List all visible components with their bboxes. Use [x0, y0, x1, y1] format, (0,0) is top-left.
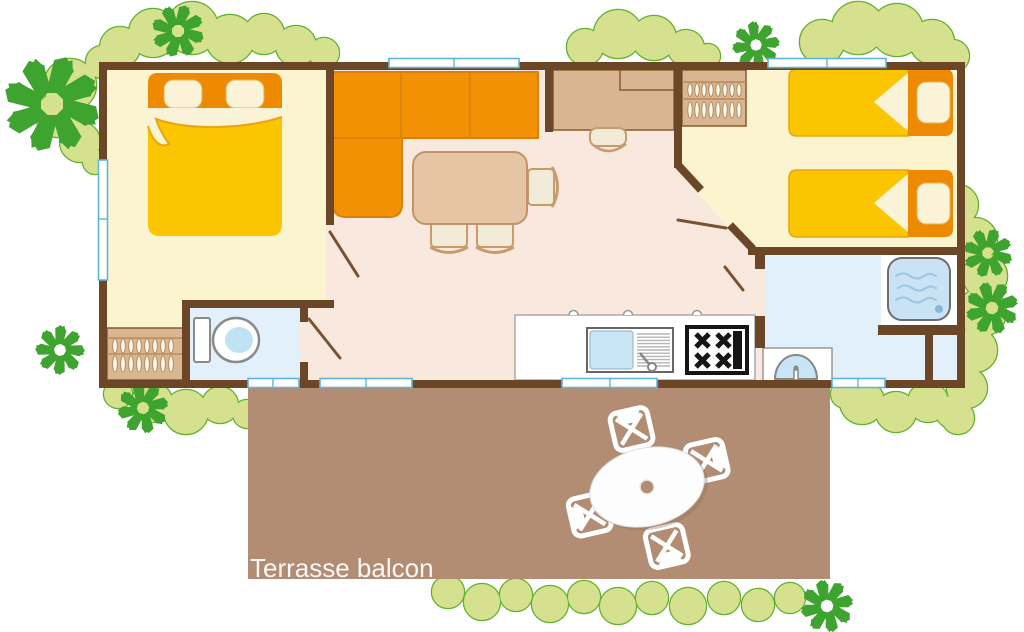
sink-basin: [590, 331, 633, 369]
wall-toilet-right-1: [300, 308, 308, 322]
wall-master-bedroom: [326, 70, 334, 225]
floorplan-illustration: Terrasse balcon: [0, 0, 1024, 632]
faucet-icon: [794, 370, 798, 380]
window: [389, 59, 519, 68]
dining-table: [413, 152, 527, 224]
wall-stub-kitchen: [545, 70, 553, 132]
washbasin: [763, 348, 832, 381]
wall-right: [957, 62, 965, 388]
window: [768, 59, 886, 68]
floorplan-svg: Terrasse balcon: [0, 0, 1024, 632]
kitchen-sink: [587, 328, 673, 372]
wall-toilet-right-2: [300, 362, 308, 380]
pillow: [164, 80, 202, 108]
stove: [687, 327, 747, 373]
wall-toilet-top: [182, 300, 334, 308]
wall-second-bedroom-bottom: [748, 247, 957, 255]
wall-bathroom-inner: [925, 335, 933, 380]
window: [248, 379, 299, 388]
single-bed-2: [789, 170, 953, 237]
wall-bathroom-1: [755, 255, 765, 269]
tree-icon: [26, 316, 95, 385]
master-wardrobe: [107, 328, 185, 380]
toilet: [194, 318, 259, 362]
drain-icon: [935, 305, 943, 313]
dining-chair: [430, 221, 468, 253]
window: [320, 379, 412, 388]
dining-chair: [528, 167, 558, 207]
window: [562, 379, 657, 388]
toilet-tank: [194, 318, 210, 362]
single-bed-1: [789, 69, 953, 136]
dining-chair: [476, 221, 514, 253]
second-bedroom-wardrobe: [682, 70, 746, 126]
window: [832, 379, 885, 388]
toilet-water: [225, 327, 253, 353]
wall-toilet-left: [182, 308, 190, 380]
pillow: [917, 183, 950, 224]
window: [99, 160, 108, 280]
terrace: Terrasse balcon: [248, 388, 830, 583]
terrace-deck: [248, 388, 830, 579]
double-bed: [148, 73, 282, 236]
wall-second-bedroom: [674, 70, 682, 168]
wall-shower: [878, 325, 957, 335]
shower: [888, 258, 950, 320]
kitchen-counter: [515, 311, 755, 381]
pillow: [917, 82, 950, 123]
wall-bathroom-2: [755, 316, 765, 348]
terrace-label: Terrasse balcon: [250, 553, 434, 583]
double-bed-blanket: [148, 117, 282, 236]
pillow: [226, 80, 264, 108]
